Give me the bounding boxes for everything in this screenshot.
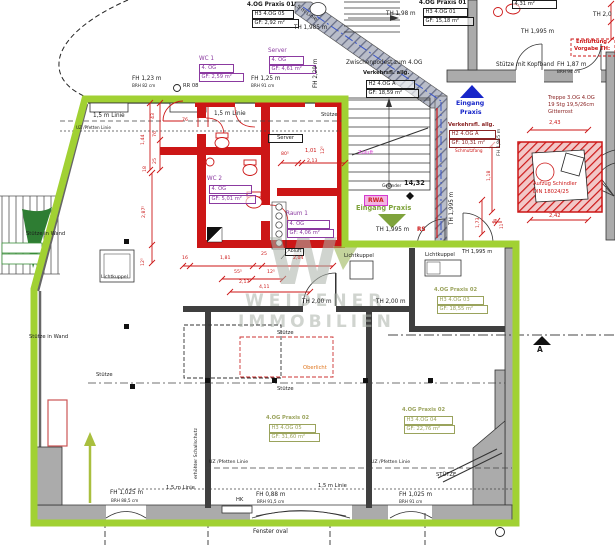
line-1-5m-label: 1,5 m Linie	[166, 486, 195, 492]
room-code: 4. OG	[269, 56, 304, 65]
window-height-label: FH 0,88 m	[256, 492, 285, 499]
railing-height-value: 14,32	[404, 180, 425, 188]
sill-height-label: BRH 94 cm	[557, 70, 580, 75]
room-title: WC 1	[199, 56, 214, 63]
room-area: GF: 31,60 m²	[269, 433, 320, 442]
door-height-label: TH 1,985 m	[294, 25, 327, 32]
elevator-label-line2: DIN 18024/25	[533, 190, 569, 196]
window-height-label: FH 1,025 m	[399, 492, 432, 499]
door-height-label: TH 1,98 m	[386, 11, 416, 18]
entrance-label-line2: Praxis	[460, 109, 482, 116]
dim-value: 1,73	[476, 218, 481, 228]
rr08-label: RR 08	[183, 84, 198, 90]
dim-value: 12⁵	[321, 146, 326, 154]
skylight-dashed-black	[184, 325, 281, 378]
room-area: GF: 10,31 m²	[449, 139, 500, 148]
room-code: H3 4.OG 04	[404, 416, 453, 425]
rs-label: RS	[417, 227, 425, 234]
door-height-label: TH 2,0	[593, 12, 612, 19]
window-height-label: FH 1,865 m	[497, 129, 502, 156]
room-code: 4. OG	[199, 64, 234, 73]
dim-value: 1,81	[220, 256, 230, 261]
dim-value: 80⁵	[281, 152, 289, 157]
oberlicht-label: Oberlicht	[303, 366, 327, 372]
zuluft-label: Zuluft	[358, 151, 373, 157]
dim-value: 18	[143, 166, 148, 172]
dim-value: 2,42	[549, 214, 561, 220]
dim-value: 11	[500, 224, 505, 229]
room-title: Server	[268, 48, 287, 55]
dim-value: 25	[153, 158, 158, 164]
door-height-label: TH 1,995 m	[449, 192, 456, 225]
room-title: 4.OG Praxis 01	[247, 2, 294, 9]
room-code: H3 4.OG 03	[437, 296, 484, 305]
dim-value: 1,44	[141, 135, 146, 145]
entrance-label-green: Eingang Praxis	[356, 205, 411, 213]
room-title: Raum 1	[286, 211, 308, 218]
oval-window-label: Fenster oval	[253, 529, 288, 536]
line-1-5m-label: 1,5 m Linie	[214, 111, 246, 118]
room-area: GF: 5,01 m²	[209, 195, 256, 204]
door-height-label: TH 1,995 m	[462, 250, 492, 256]
line-1-5m-label: 1,5 m Linie	[93, 113, 125, 120]
dim-value: 2,13	[307, 159, 317, 164]
dim-value: 12⁵	[141, 258, 146, 266]
room-code: H3 4.OG 05	[252, 10, 294, 19]
room-title: 4.OG Praxis 02	[402, 408, 445, 414]
window-height-label: FH 2,29 m	[313, 59, 320, 88]
column-label: Stütze	[96, 373, 113, 379]
walls-gray	[37, 0, 615, 522]
lichtkuppel-box-right	[425, 260, 461, 276]
elevator	[518, 142, 602, 212]
window-height-label: FH 1,87 m	[557, 62, 586, 69]
room-title: 4.OG Praxis 01	[419, 0, 466, 7]
door-height-label: TH 1,995 m	[376, 227, 409, 234]
room-title: 4.OG Praxis 02	[266, 416, 309, 422]
window-height-label: FH 1,025 m	[110, 490, 143, 497]
shaft-red-outline	[48, 400, 67, 446]
room-area: GF: 4,61 m²	[269, 65, 316, 74]
floor-plan-canvas: W WEIDENER IMMOBILIEN FH 1,23 m BRH 82 c…	[0, 0, 615, 545]
room-title: 4.OG Praxis 02	[434, 288, 477, 294]
stair-label-line3: Gitterrost	[548, 110, 573, 116]
heater-label: HK	[236, 498, 243, 504]
lichtkuppel-label: Lichtkuppel	[344, 254, 374, 260]
room-area: GF: 4,06 m²	[287, 229, 334, 238]
entrance-label-line1: Eingang	[456, 100, 484, 107]
room-code: H2 4.OG A	[449, 130, 496, 139]
lichtkuppel-label: Lichtkuppel	[101, 275, 128, 280]
server-room-label: Server	[268, 134, 303, 143]
uz-pfetten-label: UZ /Pfetten Linie	[76, 126, 111, 131]
elevator-label-line1: Aufzug Schindler	[533, 182, 577, 188]
uz-pfetten-label: UZ /Pfetten Linie	[209, 460, 248, 465]
room-sub: Verkehrsfl. allg.	[363, 71, 409, 77]
sill-height-label: BRH 88,5 cm	[111, 499, 138, 504]
sill-height-label: BRH 91 cm	[251, 84, 274, 89]
door-height-label: TH 2,00 m	[302, 299, 332, 306]
room-area: GF: 18,59 m²	[366, 89, 419, 98]
door-height-label: TH 2,00 m	[376, 299, 406, 306]
room-area: 4,31 m²	[512, 0, 557, 9]
column-label: Stütze	[321, 113, 338, 119]
room-area: GF: 22,76 m²	[404, 425, 455, 434]
room-code: 4. OG	[209, 185, 252, 194]
dim-value: 2,87⁵	[142, 206, 147, 218]
column-label: Stütze	[277, 387, 294, 393]
room-title: WC 2	[207, 176, 222, 183]
dim-value: 76	[153, 131, 158, 137]
room-code: 4. OG	[287, 220, 330, 229]
dim-value: 55⁵	[234, 270, 242, 275]
room-area: GF: 18,55 m²	[437, 305, 488, 314]
dim-value: 12⁵	[267, 270, 275, 275]
window-top-left	[90, 103, 128, 112]
lichtkuppel-label: Lichtkuppel	[425, 253, 455, 259]
railing-marker	[406, 192, 414, 200]
railing-label: Geländer	[382, 184, 401, 189]
room-code: H3 4.OG 05	[269, 424, 316, 433]
room-area: GF: 2,59 m²	[199, 73, 244, 82]
dim-value: 25	[261, 252, 267, 257]
sill-height-label: BRH 82 cm	[132, 84, 155, 89]
uz-pfetten-label: UZ /Pfetten Linie	[371, 460, 410, 465]
entry-triangle-blue	[460, 85, 484, 98]
dim-value: 76	[182, 118, 188, 123]
entry-triangle-green	[378, 214, 406, 228]
room-area: GF: 15,18 m²	[423, 17, 474, 26]
sound-insulation-label: erhöhter Schallschutz	[194, 428, 199, 479]
vent-note-line2: Vorgabe TH:	[574, 47, 610, 53]
dim-value: 16	[182, 256, 188, 261]
sill-height-label: BRH 91 cm	[399, 500, 422, 505]
line-1-5m-label: 1,5 m Linie	[318, 484, 347, 490]
column-in-wall-label: Stütze in Wand	[26, 232, 65, 238]
dim-value: 2,13	[239, 280, 249, 285]
heater-hk	[222, 506, 252, 513]
column-label: Stütze	[277, 331, 294, 337]
door-height-label: TH 1,995 m	[521, 29, 554, 36]
window-height-label: FH 1,25 m	[251, 76, 280, 83]
dim-value: 2,43	[549, 121, 561, 127]
column-label-caps: STÜTZE	[436, 473, 456, 479]
dim-value: 1,18	[487, 171, 492, 181]
room-code: H3 4.OG 01	[423, 8, 468, 17]
room-sub: Verkehrsfl. allg.	[448, 123, 494, 129]
column-kopfband-label: Stütze mit Kopfband	[496, 62, 554, 69]
floor-plan-drawing	[0, 0, 615, 545]
dim-value: 1,01	[305, 149, 317, 155]
dim-value: 2,04	[293, 256, 303, 261]
column-in-wall-label: Stütze in Wand	[29, 335, 68, 341]
room-title: Zwischenpodest zum 4.OG	[346, 60, 422, 67]
room-code: H2 4.OG A	[366, 80, 415, 89]
dim-value: 43	[151, 113, 156, 119]
lichtkuppel-box-center	[350, 261, 373, 279]
sill-height-label: BRH 91,5 cm	[257, 500, 284, 505]
room-area: GF: 2,92 m²	[252, 19, 299, 28]
section-marker-a	[533, 336, 551, 345]
window-height-label: FH 1,23 m	[132, 76, 161, 83]
dim-value: 4,11	[259, 285, 269, 290]
site-boundary-curve	[59, 0, 128, 97]
section-a-label: A	[537, 346, 543, 355]
schmutzfang-label: Schmutzfang	[455, 149, 483, 154]
